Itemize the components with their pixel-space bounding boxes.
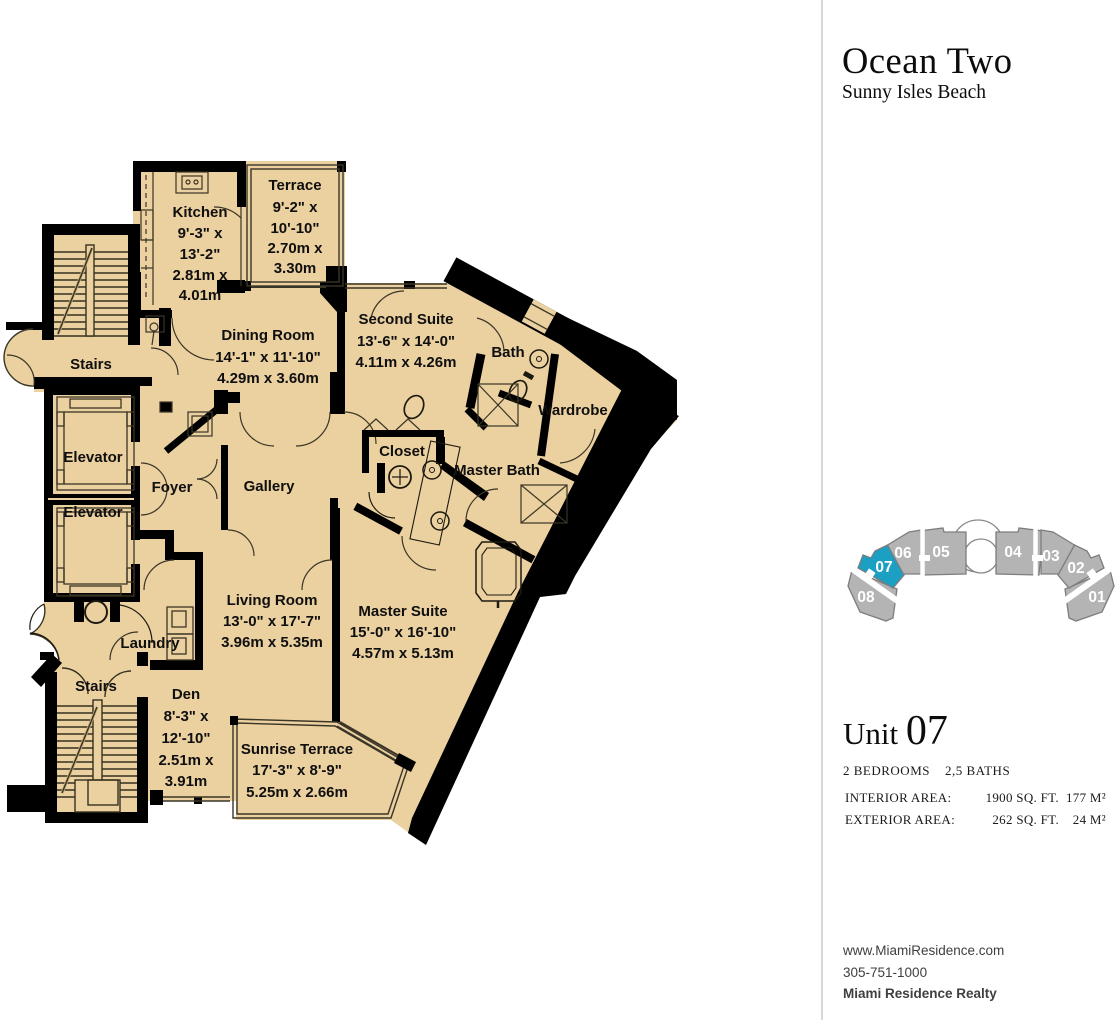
svg-text:4.11m x 4.26m: 4.11m x 4.26m: [356, 354, 457, 371]
svg-text:Second Suite: Second Suite: [358, 311, 453, 328]
svg-text:Kitchen: Kitchen: [172, 204, 227, 221]
svg-text:Bath: Bath: [491, 344, 524, 361]
svg-text:01: 01: [1088, 589, 1106, 606]
svg-text:EXTERIOR AREA:: EXTERIOR AREA:: [845, 812, 955, 827]
svg-text:Den: Den: [172, 686, 200, 703]
svg-text:02: 02: [1067, 560, 1084, 577]
svg-text:9'-3" x: 9'-3" x: [178, 225, 224, 242]
svg-text:14'-1" x 11'-10": 14'-1" x 11'-10": [215, 349, 321, 366]
svg-text:Sunny Isles Beach: Sunny Isles Beach: [842, 82, 986, 103]
svg-text:04: 04: [1004, 544, 1022, 561]
svg-text:15'-0" x 16'-10": 15'-0" x 16'-10": [350, 624, 456, 641]
svg-text:3.96m x 5.35m: 3.96m x 5.35m: [221, 634, 323, 651]
svg-text:9'-2" x: 9'-2" x: [273, 199, 319, 216]
svg-text:1900 SQ. FT.: 1900 SQ. FT.: [986, 790, 1059, 805]
svg-text:Wardrobe: Wardrobe: [538, 402, 607, 419]
svg-text:24 M²: 24 M²: [1073, 812, 1106, 827]
svg-text:12'-10": 12'-10": [161, 730, 210, 747]
svg-text:4.57m x 5.13m: 4.57m x 5.13m: [352, 645, 454, 662]
svg-text:Sunrise Terrace: Sunrise Terrace: [241, 741, 353, 758]
svg-text:Elevator: Elevator: [63, 504, 122, 521]
svg-text:262 SQ. FT.: 262 SQ. FT.: [992, 812, 1059, 827]
svg-text:10'-10": 10'-10": [270, 220, 319, 237]
svg-text:8'-3" x: 8'-3" x: [164, 708, 210, 725]
svg-text:305-751-1000: 305-751-1000: [843, 965, 927, 980]
svg-text:3.91m: 3.91m: [165, 773, 208, 790]
svg-text:Miami Residence Realty: Miami Residence Realty: [843, 986, 997, 1001]
svg-text:07: 07: [875, 559, 892, 576]
svg-text:Foyer: Foyer: [152, 479, 193, 496]
svg-text:Gallery: Gallery: [244, 478, 296, 495]
svg-text:Terrace: Terrace: [268, 177, 321, 194]
svg-text:13'-6" x 14'-0": 13'-6" x 14'-0": [357, 333, 455, 350]
svg-text:2.51m x: 2.51m x: [158, 752, 214, 769]
svg-text:05: 05: [932, 544, 950, 561]
svg-text:08: 08: [857, 589, 875, 606]
svg-text:3.30m: 3.30m: [274, 260, 317, 277]
svg-text:03: 03: [1042, 548, 1060, 565]
svg-text:Master Bath: Master Bath: [454, 462, 540, 479]
svg-text:www.MiamiResidence.com: www.MiamiResidence.com: [842, 943, 1004, 958]
svg-text:2.81m x: 2.81m x: [172, 267, 228, 284]
svg-text:17'-3" x 8'-9": 17'-3" x 8'-9": [252, 762, 342, 779]
svg-text:4.29m x 3.60m: 4.29m x 3.60m: [217, 370, 319, 387]
svg-text:13'-2": 13'-2": [180, 246, 221, 263]
svg-text:Stairs: Stairs: [75, 678, 117, 695]
svg-text:2.70m x: 2.70m x: [267, 240, 323, 257]
svg-text:Closet: Closet: [379, 443, 425, 460]
svg-text:13'-0" x 17'-7": 13'-0" x 17'-7": [223, 613, 321, 630]
svg-text:Living Room: Living Room: [227, 592, 318, 609]
svg-text:Elevator: Elevator: [63, 449, 122, 466]
svg-text:Dining Room: Dining Room: [221, 327, 314, 344]
svg-text:Unit 07: Unit 07: [843, 708, 948, 754]
svg-text:Laundry: Laundry: [120, 635, 180, 652]
svg-text:5.25m x 2.66m: 5.25m x 2.66m: [246, 784, 348, 801]
svg-text:INTERIOR AREA:: INTERIOR AREA:: [845, 790, 951, 805]
svg-text:Ocean Two: Ocean Two: [842, 40, 1013, 81]
svg-text:2 BEDROOMS: 2 BEDROOMS: [843, 763, 930, 778]
svg-text:Master Suite: Master Suite: [358, 603, 447, 620]
svg-text:4.01m: 4.01m: [179, 287, 222, 304]
svg-text:2,5 BATHS: 2,5 BATHS: [945, 763, 1010, 778]
svg-text:06: 06: [894, 545, 912, 562]
svg-text:177 M²: 177 M²: [1066, 790, 1106, 805]
svg-text:Stairs: Stairs: [70, 356, 112, 373]
